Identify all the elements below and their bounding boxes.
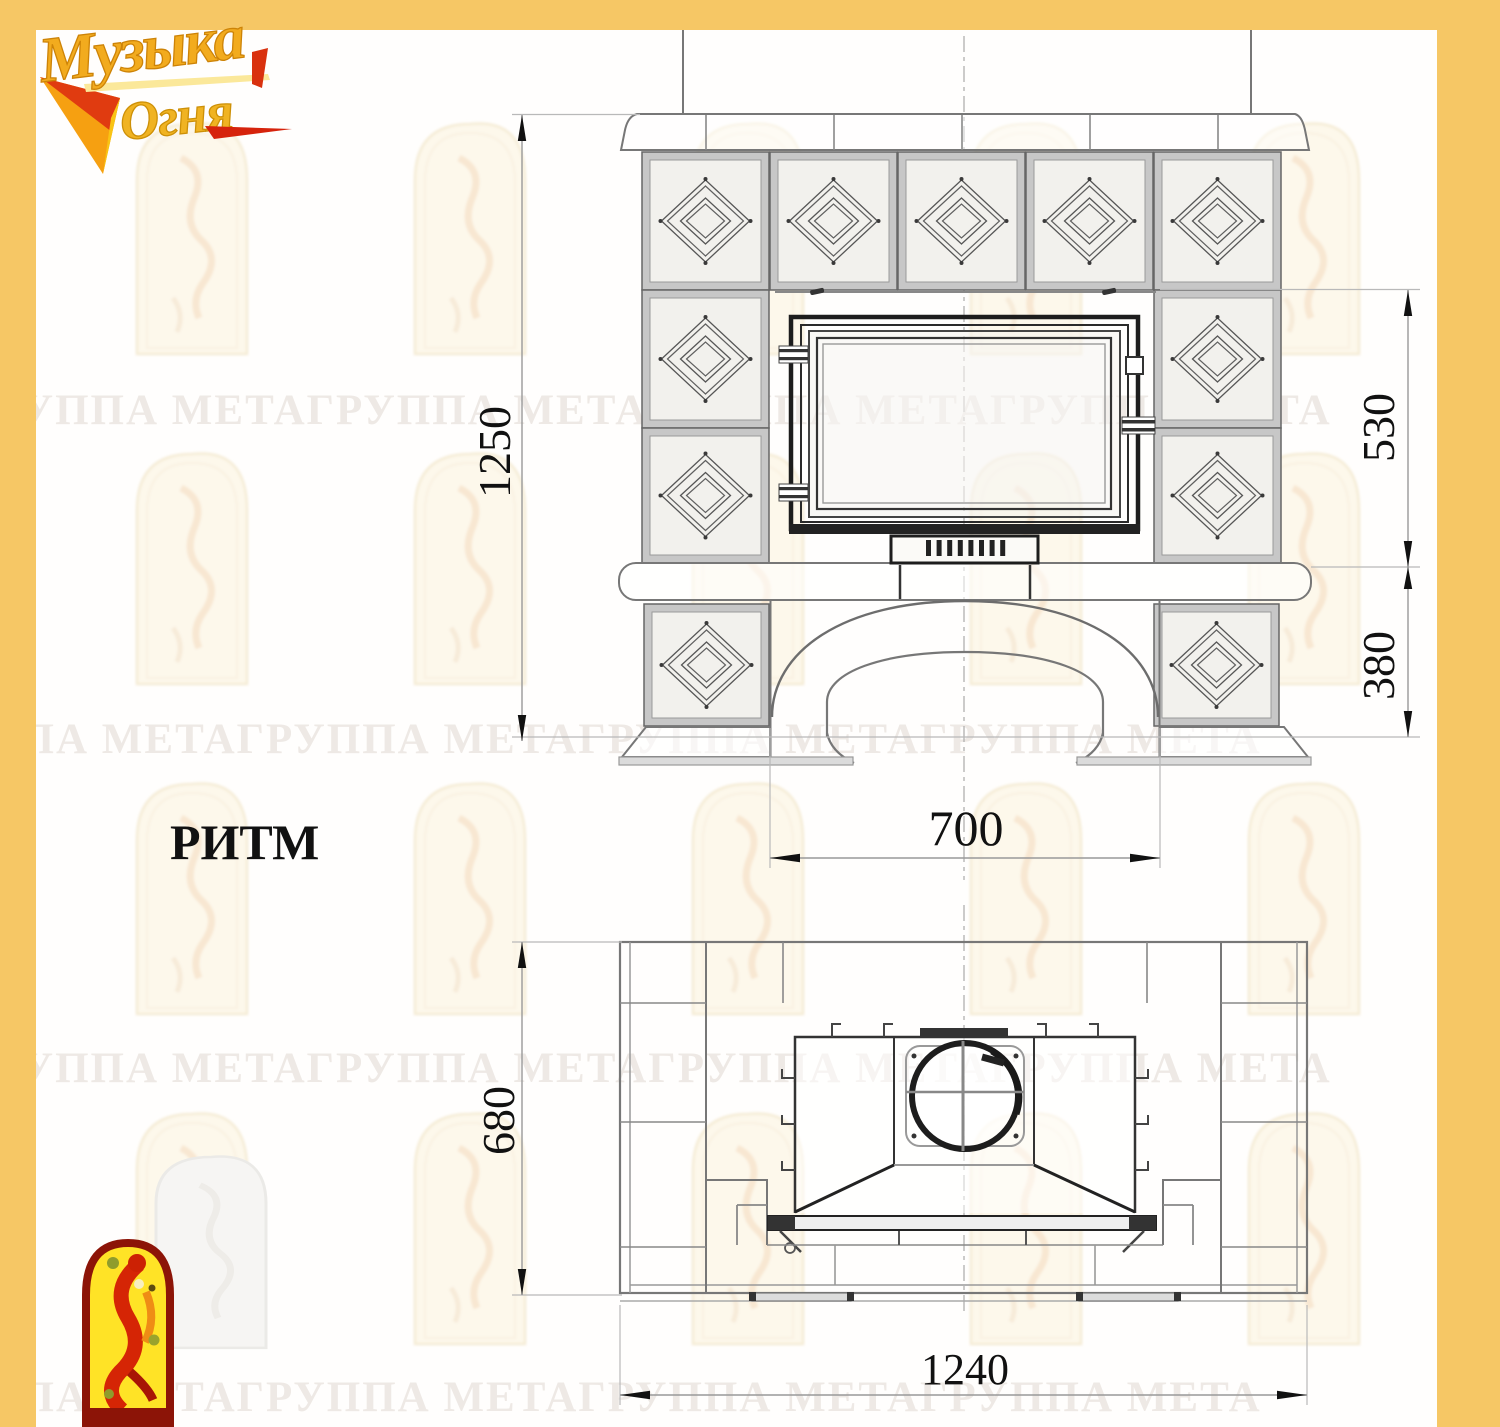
svg-text:700: 700 xyxy=(929,800,1004,856)
svg-text:РИТМ: РИТМ xyxy=(170,814,319,870)
svg-text:ГРУППА МЕТАГРУППА МЕТАГРУППА М: ГРУППА МЕТАГРУППА МЕТАГРУППА МЕТАГРУППА … xyxy=(0,1374,1262,1421)
svg-text:Огня: Огня xyxy=(117,80,236,151)
svg-text:1240: 1240 xyxy=(921,1345,1009,1394)
svg-text:1250: 1250 xyxy=(469,406,520,498)
svg-text:530: 530 xyxy=(1353,393,1404,462)
svg-text:680: 680 xyxy=(473,1086,524,1155)
svg-text:380: 380 xyxy=(1353,631,1404,700)
